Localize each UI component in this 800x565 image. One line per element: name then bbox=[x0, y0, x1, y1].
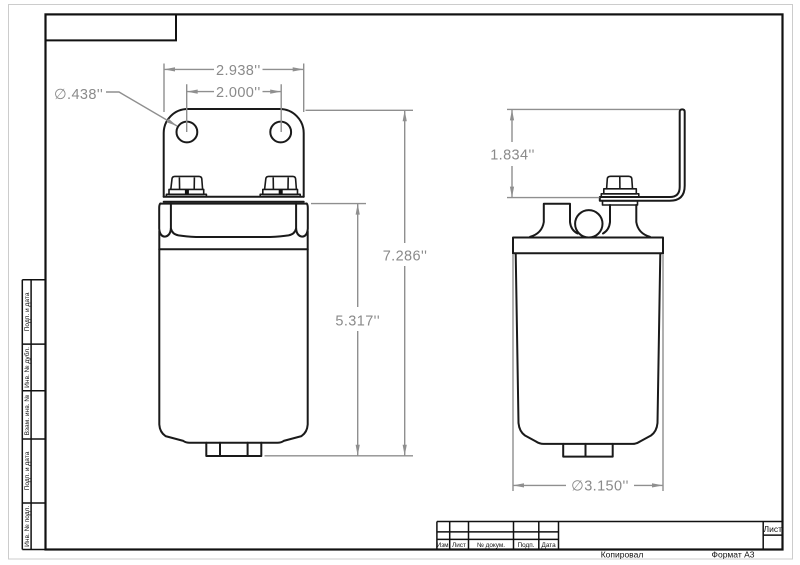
svg-text:Лист: Лист bbox=[764, 524, 783, 534]
svg-text:∅.438'': ∅.438'' bbox=[54, 87, 103, 103]
svg-text:5.317'': 5.317'' bbox=[335, 314, 380, 330]
svg-text:№ докум.: № докум. bbox=[477, 542, 505, 549]
svg-text:Подп. и дата: Подп. и дата bbox=[24, 292, 31, 331]
svg-text:Подп. и дата: Подп. и дата bbox=[24, 451, 31, 490]
svg-text:Лист: Лист bbox=[452, 542, 466, 549]
svg-text:Инв. № подл.: Инв. № подл. bbox=[24, 506, 31, 547]
svg-text:Подп.: Подп. bbox=[518, 542, 535, 549]
svg-text:Формат A3: Формат A3 bbox=[712, 550, 755, 560]
svg-text:Изм.: Изм. bbox=[437, 542, 451, 549]
svg-text:Взам. инв. №: Взам. инв. № bbox=[24, 395, 31, 436]
svg-text:Инв. № дубл.: Инв. № дубл. bbox=[23, 347, 31, 388]
svg-text:7.286'': 7.286'' bbox=[383, 249, 428, 265]
svg-text:1.834'': 1.834'' bbox=[490, 148, 535, 164]
svg-text:2.000'': 2.000'' bbox=[216, 85, 261, 101]
svg-text:∅3.150'': ∅3.150'' bbox=[571, 479, 629, 495]
svg-text:Дата: Дата bbox=[542, 542, 557, 549]
svg-text:2.938'': 2.938'' bbox=[216, 63, 261, 79]
svg-text:Копировал: Копировал bbox=[601, 550, 644, 560]
